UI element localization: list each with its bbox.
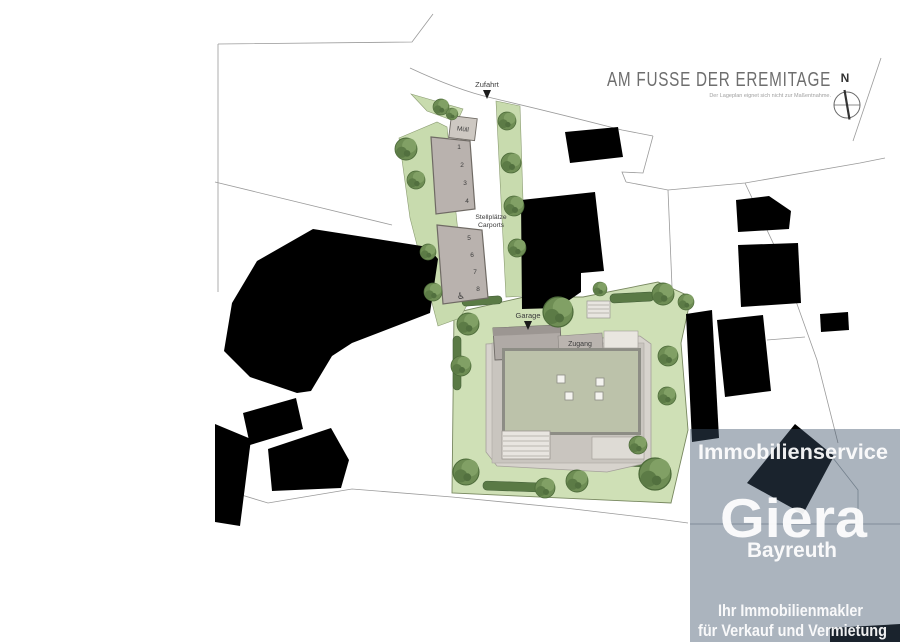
carport-space-number: 3 xyxy=(463,180,467,187)
skylight xyxy=(595,392,603,400)
carport-space-number: 4 xyxy=(465,198,469,205)
watermark-line1: Immobilienservice xyxy=(698,440,888,464)
zugang-label: Zugang xyxy=(568,341,592,348)
carport-block-5-8: 5 6 7 8 ♿ xyxy=(437,225,488,304)
tree-icon xyxy=(652,283,674,305)
tree-icon xyxy=(424,283,442,301)
svg-text:Stellplätze: Stellplätze xyxy=(475,214,507,221)
svg-text:Carports: Carports xyxy=(478,222,505,229)
disclaimer-note: Der Lageplan eignet sich nicht zur Maßen… xyxy=(709,93,831,99)
tree-icon xyxy=(658,346,678,366)
tree-icon xyxy=(501,153,521,173)
watermark-tagline2: für Verkauf und Vermietung xyxy=(698,622,887,640)
watermark: Immobilienservice Giera Bayreuth Ihr Imm… xyxy=(690,429,900,642)
tree-icon xyxy=(451,356,471,376)
tree-icon xyxy=(420,244,436,260)
wheelchair-icon: ♿ xyxy=(457,292,465,302)
carport-space-number: 5 xyxy=(467,235,471,242)
carport-block-1-4: 1 2 3 4 xyxy=(431,137,475,214)
tree-icon xyxy=(395,138,417,160)
carport-space-number: 1 xyxy=(457,144,461,151)
tree-icon xyxy=(639,458,671,490)
tree-icon xyxy=(658,387,676,405)
tree-icon xyxy=(543,297,573,327)
tree-icon xyxy=(457,313,479,335)
carport-space-number: 8 xyxy=(476,286,480,293)
carport-space-number: 6 xyxy=(470,252,474,259)
flat-roof xyxy=(504,350,640,434)
skylight xyxy=(557,375,565,383)
tree-icon xyxy=(535,478,555,498)
carport-space-number: 2 xyxy=(460,162,464,169)
tree-icon xyxy=(504,196,524,216)
site-plan: Müll 1 2 3 4 Stellplätze Carports 5 6 7 … xyxy=(0,0,900,642)
carport-space-number: 7 xyxy=(473,269,477,276)
page-title: AM FUSSE DER EREMITAGE xyxy=(607,68,831,91)
zufahrt-label: Zufahrt xyxy=(475,80,500,89)
tree-icon xyxy=(508,239,526,257)
north-label: N xyxy=(841,71,850,85)
courtyard-top-right xyxy=(604,331,638,348)
north-compass: N xyxy=(834,71,860,120)
tree-icon xyxy=(453,459,479,485)
stellplaetze-label: Stellplätze Carports xyxy=(475,214,507,229)
tree-icon xyxy=(446,108,458,120)
tree-icon xyxy=(498,112,516,130)
tree-icon xyxy=(407,171,425,189)
tree-icon xyxy=(678,294,694,310)
site-plan-page: Müll 1 2 3 4 Stellplätze Carports 5 6 7 … xyxy=(0,0,900,642)
garage-label: Garage xyxy=(515,311,540,320)
tree-icon xyxy=(566,470,588,492)
tree-icon xyxy=(593,282,607,296)
watermark-city: Bayreuth xyxy=(747,539,837,562)
zufahrt-label-group: Zufahrt xyxy=(475,80,500,99)
steps-top-right xyxy=(587,301,610,318)
steps-bottom-left xyxy=(502,431,550,459)
skylight xyxy=(565,392,573,400)
skylight xyxy=(596,378,604,386)
tree-icon xyxy=(629,436,647,454)
watermark-tagline1: Ihr Immobilienmakler xyxy=(718,602,864,620)
